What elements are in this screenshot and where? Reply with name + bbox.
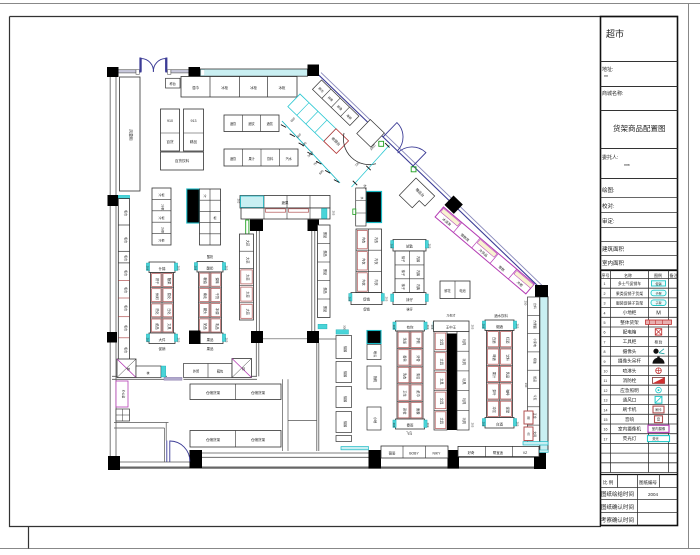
svg-text:袜裤: 袜裤 <box>343 421 348 428</box>
svg-text:1: 1 <box>604 282 606 286</box>
svg-text:鞋: 鞋 <box>242 366 245 371</box>
svg-text:202: 202 <box>237 199 241 204</box>
svg-text:饮料: 饮料 <box>533 303 538 309</box>
svg-text:春雨: 春雨 <box>407 423 414 428</box>
svg-text:袜仔: 袜仔 <box>406 297 413 302</box>
svg-text:毛巾: 毛巾 <box>124 237 129 243</box>
svg-text:校对:: 校对: <box>602 202 615 210</box>
svg-text:审定:: 审定: <box>602 217 615 225</box>
svg-text:袜裤: 袜裤 <box>343 396 348 403</box>
svg-text:冷柜: 冷柜 <box>161 204 166 210</box>
svg-text:建筑面积: 建筑面积 <box>602 245 625 253</box>
svg-text:大蒜: 大蒜 <box>246 274 251 281</box>
svg-text:206: 206 <box>482 324 486 329</box>
svg-text:休闲: 休闲 <box>155 293 160 299</box>
svg-text:203: 203 <box>177 266 181 271</box>
svg-text:袜裤: 袜裤 <box>343 346 348 353</box>
svg-text:文具: 文具 <box>167 323 172 330</box>
svg-text:2: 2 <box>604 292 606 296</box>
svg-text:蛋品: 蛋品 <box>323 269 328 275</box>
svg-text:袜子: 袜子 <box>401 270 406 277</box>
svg-text:内裤: 内裤 <box>416 284 421 291</box>
svg-text:冰柜: 冰柜 <box>250 85 257 90</box>
svg-text:203: 203 <box>385 297 389 302</box>
svg-text:室内摄像机: 室内摄像机 <box>618 426 641 433</box>
svg-text:203: 203 <box>426 423 430 428</box>
svg-text:206: 206 <box>430 325 434 330</box>
svg-text:13: 13 <box>604 399 608 403</box>
svg-text:水: 水 <box>360 197 364 200</box>
svg-text:日化: 日化 <box>167 308 172 315</box>
svg-text:8: 8 <box>604 350 606 354</box>
svg-text:精品: 精品 <box>190 139 198 144</box>
svg-text:文具: 文具 <box>440 398 445 405</box>
svg-text:护肤: 护肤 <box>416 338 421 345</box>
svg-text:应急照明: 应急照明 <box>620 387 639 394</box>
svg-text:红酒: 红酒 <box>506 337 511 344</box>
svg-text:文具: 文具 <box>533 431 538 437</box>
svg-text:10: 10 <box>604 370 608 374</box>
svg-text:地址:: 地址: <box>602 66 613 73</box>
svg-text:小地: 小地 <box>373 417 378 424</box>
svg-text:工具柜: 工具柜 <box>623 338 637 345</box>
svg-text:荧光灯: 荧光灯 <box>623 435 637 442</box>
svg-text:促销: 促销 <box>363 307 370 312</box>
svg-text:6: 6 <box>604 331 606 335</box>
svg-text:图纸确认时间: 图纸确认时间 <box>601 503 634 511</box>
svg-text:果类促销子货架: 果类促销子货架 <box>616 291 643 296</box>
svg-text:9: 9 <box>604 360 606 364</box>
svg-text:白酒: 白酒 <box>496 422 503 427</box>
svg-text:大蒜: 大蒜 <box>246 309 251 316</box>
svg-text:206: 206 <box>390 244 394 249</box>
svg-text:袜裤: 袜裤 <box>343 371 348 378</box>
svg-text:酸奶: 酸奶 <box>207 254 213 259</box>
svg-text:冲饮: 冲饮 <box>492 407 497 414</box>
svg-text:203: 203 <box>471 325 475 330</box>
svg-text:206: 206 <box>194 266 198 271</box>
svg-text:3: 3 <box>604 302 606 306</box>
svg-text:子架: 子架 <box>655 291 661 296</box>
svg-text:内衣: 内衣 <box>362 279 367 286</box>
svg-text:203: 203 <box>426 325 430 330</box>
svg-text:果品: 果品 <box>207 346 214 351</box>
svg-text:水产: 水产 <box>363 184 367 190</box>
svg-text:冰柜: 冰柜 <box>279 85 286 90</box>
svg-text:薇姿: 薇姿 <box>389 451 396 456</box>
svg-text:冷: 冷 <box>203 193 206 198</box>
svg-text:酒饮: 酒饮 <box>230 156 237 161</box>
svg-text:咖啡: 咖啡 <box>506 389 511 396</box>
svg-text:大蒜: 大蒜 <box>246 240 251 247</box>
svg-text:地瓜: 地瓜 <box>373 351 378 358</box>
svg-text:14: 14 <box>604 408 608 412</box>
svg-text:203: 203 <box>225 338 229 343</box>
svg-text:冷柜: 冷柜 <box>158 215 164 220</box>
svg-text:饮料: 饮料 <box>267 156 274 161</box>
svg-text:内衣: 内衣 <box>374 279 379 286</box>
svg-text:蛋品: 蛋品 <box>323 306 328 312</box>
svg-text:电池: 电池 <box>459 288 466 293</box>
svg-text:百货: 百货 <box>166 139 174 144</box>
svg-text:7: 7 <box>604 340 606 344</box>
svg-text:仓储货架: 仓储货架 <box>251 437 266 442</box>
svg-text:300: 300 <box>343 325 347 330</box>
svg-text:子架: 子架 <box>655 300 661 305</box>
svg-text:内裤: 内裤 <box>416 256 421 263</box>
svg-text:五金: 五金 <box>533 413 538 419</box>
svg-text:仓储货架: 仓储货架 <box>206 437 221 442</box>
svg-text:好奇: 好奇 <box>468 450 475 455</box>
svg-text:多士气促销车: 多士气促销车 <box>618 281 641 286</box>
svg-text:膨化: 膨化 <box>167 293 172 300</box>
svg-text:文具: 文具 <box>440 378 445 385</box>
svg-text:牙膏: 牙膏 <box>416 355 421 361</box>
svg-text:206: 206 <box>392 325 396 330</box>
svg-text:試監: 試監 <box>406 244 413 249</box>
svg-text:203: 203 <box>516 324 520 329</box>
svg-text:有你: 有你 <box>407 325 414 330</box>
svg-text:罐头: 罐头 <box>203 308 208 315</box>
svg-text:袜仔: 袜仔 <box>406 307 413 312</box>
svg-text:乳品: 乳品 <box>506 372 511 378</box>
svg-text:17: 17 <box>604 437 608 441</box>
svg-text:清洁: 清洁 <box>416 373 421 379</box>
svg-text:206: 206 <box>146 266 150 271</box>
svg-text:16: 16 <box>604 428 608 432</box>
svg-text:文具: 文具 <box>440 418 445 425</box>
svg-text:绘图:: 绘图: <box>602 186 615 194</box>
svg-text:今互: 今互 <box>533 395 538 401</box>
svg-text:203: 203 <box>471 423 475 428</box>
svg-text:南北: 南北 <box>203 293 208 300</box>
svg-text:比 例: 比 例 <box>603 479 614 486</box>
svg-text:毛巾: 毛巾 <box>124 270 129 276</box>
svg-text:160: 160 <box>524 383 528 388</box>
svg-text:服装促销子货架: 服装促销子货架 <box>616 300 643 305</box>
svg-text:方便面: 方便面 <box>533 320 538 329</box>
svg-text:烟酒: 烟酒 <box>496 324 503 329</box>
svg-text:奶品: 奶品 <box>203 323 208 329</box>
svg-text:饼干: 饼干 <box>155 278 160 285</box>
svg-text:外贸: 外贸 <box>193 369 199 374</box>
svg-text:柜: 柜 <box>213 215 216 220</box>
svg-text:什锦: 什锦 <box>159 266 166 271</box>
svg-text:商城名称:: 商城名称: <box>602 90 623 97</box>
svg-text:冲调: 冲调 <box>215 308 220 314</box>
svg-text:5: 5 <box>604 321 606 325</box>
svg-text:粮油: 粮油 <box>203 277 208 283</box>
svg-text:毛巾: 毛巾 <box>124 255 129 261</box>
svg-text:玩具: 玩具 <box>462 339 467 346</box>
svg-text:酸奶: 酸奶 <box>207 266 214 271</box>
svg-text:冰柜: 冰柜 <box>221 85 228 90</box>
svg-text:柜台: 柜台 <box>655 338 663 344</box>
svg-text:206: 206 <box>392 423 396 428</box>
svg-text:蛋品: 蛋品 <box>323 250 328 256</box>
svg-text:4: 4 <box>604 311 606 315</box>
svg-text:内衣: 内衣 <box>374 237 379 244</box>
svg-text:大蒜: 大蒜 <box>246 291 251 298</box>
svg-text:NIKY: NIKY <box>433 452 442 456</box>
svg-text:大蒜: 大蒜 <box>246 257 251 264</box>
svg-text:冷柜: 冷柜 <box>158 192 164 197</box>
svg-text:206: 206 <box>348 297 352 302</box>
svg-text:摄像头: 摄像头 <box>623 348 637 355</box>
svg-text:蛋品: 蛋品 <box>323 232 328 238</box>
svg-text:鲜花: 鲜花 <box>444 288 451 293</box>
svg-text:果汁: 果汁 <box>249 156 256 161</box>
svg-text:湿巾: 湿巾 <box>192 85 199 90</box>
svg-text:纸品: 纸品 <box>155 323 160 329</box>
svg-text:图例: 图例 <box>654 272 662 278</box>
svg-text:名称: 名称 <box>624 272 632 278</box>
svg-text:保健: 保健 <box>506 407 511 414</box>
svg-text:VZ: VZ <box>523 451 527 455</box>
svg-text:M: M <box>656 311 661 317</box>
svg-text:图纸绘给时间: 图纸绘给时间 <box>601 490 634 498</box>
svg-text:洗化: 洗化 <box>155 308 160 315</box>
svg-text:刷: 刷 <box>527 416 530 420</box>
svg-text:室内面积: 室内面积 <box>602 259 625 267</box>
svg-text:喷淋头: 喷淋头 <box>623 367 637 374</box>
svg-text:毛巾: 毛巾 <box>124 287 129 293</box>
svg-text:15: 15 <box>604 418 608 422</box>
svg-text:BOBY: BOBY <box>409 452 419 456</box>
svg-text:备注: 备注 <box>670 272 678 278</box>
svg-text:蔬果: 蔬果 <box>282 200 289 205</box>
svg-text:汽水: 汽水 <box>286 156 293 161</box>
svg-text:袜: 袜 <box>127 366 130 371</box>
svg-text:飞鸟: 飞鸟 <box>406 431 412 436</box>
svg-text:箱包: 箱包 <box>217 369 224 374</box>
svg-text:冷柜: 冷柜 <box>158 238 164 243</box>
svg-text:蛋品: 蛋品 <box>323 287 328 293</box>
svg-text:摄像头吊杆: 摄像头吊杆 <box>618 358 641 365</box>
svg-text:毛巾: 毛巾 <box>124 347 129 353</box>
svg-text:玩具: 玩具 <box>462 398 467 405</box>
svg-text:206: 206 <box>482 422 486 427</box>
svg-text:通风口: 通风口 <box>623 396 637 403</box>
svg-text:250: 250 <box>524 301 528 306</box>
svg-text:2004: 2004 <box>648 492 659 497</box>
svg-text:纸品: 纸品 <box>533 376 538 382</box>
svg-text:白酒: 白酒 <box>492 337 497 344</box>
svg-text:玩具: 玩具 <box>462 359 467 366</box>
svg-text:洗发: 洗发 <box>402 338 407 345</box>
svg-text:风幕柜: 风幕柜 <box>129 129 134 141</box>
svg-text:消防栓: 消防栓 <box>623 377 637 384</box>
svg-text:王中王: 王中王 <box>446 325 457 330</box>
svg-text:仓储货架: 仓储货架 <box>251 390 266 395</box>
svg-text:配电箱: 配电箱 <box>623 329 637 336</box>
svg-text:刷卡: 刷卡 <box>655 407 662 412</box>
svg-text:203: 203 <box>177 338 181 343</box>
svg-text:序号: 序号 <box>602 272 610 278</box>
svg-text:茶叶: 茶叶 <box>492 389 497 396</box>
svg-text:刷卡机: 刷卡机 <box>623 406 637 413</box>
svg-text:913: 913 <box>191 119 197 123</box>
svg-text:文具: 文具 <box>440 359 445 366</box>
svg-text:玩具: 玩具 <box>462 418 467 425</box>
svg-text:酒饮: 酒饮 <box>267 121 274 126</box>
svg-text:果品: 果品 <box>207 337 214 342</box>
svg-text:12: 12 <box>604 389 608 393</box>
svg-text:203: 203 <box>225 266 229 271</box>
svg-text:毛巾: 毛巾 <box>124 325 129 331</box>
svg-text:11: 11 <box>604 379 608 383</box>
svg-text:图纸编号: 图纸编号 <box>639 479 657 486</box>
svg-text:小地柜: 小地柜 <box>623 309 637 316</box>
svg-text:内衣: 内衣 <box>374 258 379 265</box>
svg-text:冷柜: 冷柜 <box>161 227 166 233</box>
svg-text:毛巾: 毛巾 <box>124 210 129 216</box>
svg-text:整体货架: 整体货架 <box>620 319 639 326</box>
svg-text:糖果: 糖果 <box>167 278 172 285</box>
svg-text:称台: 称台 <box>170 81 176 86</box>
svg-text:拖鞋: 拖鞋 <box>373 376 378 383</box>
svg-text:委托人:: 委托人: <box>602 154 618 161</box>
svg-text:饮料: 饮料 <box>506 354 511 361</box>
svg-text:酒水饮料: 酒水饮料 <box>494 313 508 318</box>
svg-text:内衣: 内衣 <box>362 258 367 265</box>
svg-text:203: 203 <box>332 211 336 216</box>
svg-text:毛巾: 毛巾 <box>124 305 129 311</box>
svg-text:室内摄像: 室内摄像 <box>652 426 666 431</box>
svg-text:206: 206 <box>146 338 150 343</box>
svg-text:酒饮: 酒饮 <box>230 121 237 126</box>
svg-text:酒饮: 酒饮 <box>248 121 255 126</box>
svg-text:袜子: 袜子 <box>401 256 406 263</box>
svg-text:促销: 促销 <box>655 281 661 286</box>
svg-text:荧光: 荧光 <box>652 436 659 441</box>
svg-text:果汁: 果汁 <box>492 372 497 379</box>
svg-text:办公桌: 办公桌 <box>122 390 126 399</box>
svg-text:香皂: 香皂 <box>402 355 407 361</box>
svg-text:面膜: 面膜 <box>416 408 421 415</box>
svg-text:干货: 干货 <box>215 293 220 299</box>
svg-text:***: *** <box>624 164 630 170</box>
svg-text:考察确认时间: 考察确认时间 <box>601 516 634 524</box>
svg-text:203: 203 <box>428 244 432 249</box>
svg-text:乃你才: 乃你才 <box>446 313 455 318</box>
svg-text:啤酒: 啤酒 <box>492 354 497 361</box>
svg-text:纸巾: 纸巾 <box>416 390 421 396</box>
svg-text:**: ** <box>604 75 608 81</box>
svg-text:百货饮料: 百货饮料 <box>175 158 190 163</box>
svg-text:袜: 袜 <box>146 370 149 375</box>
svg-text:内衣: 内衣 <box>362 237 367 244</box>
svg-text:促销: 促销 <box>159 346 166 351</box>
svg-text:彩妆: 彩妆 <box>402 408 407 415</box>
svg-text:粮油: 粮油 <box>533 358 538 364</box>
svg-text:大件: 大件 <box>159 337 166 342</box>
svg-text:玩具: 玩具 <box>462 378 467 385</box>
svg-text:货架商品配置图: 货架商品配置图 <box>613 123 666 133</box>
svg-text:帮宝适: 帮宝适 <box>493 450 504 455</box>
svg-text:促销: 促销 <box>363 297 370 302</box>
svg-text:超市: 超市 <box>606 28 624 39</box>
svg-text:小家电: 小家电 <box>533 338 538 347</box>
svg-text:仓储货架: 仓储货架 <box>206 390 221 395</box>
svg-text:洗衣: 洗衣 <box>402 373 407 380</box>
svg-text:卫生: 卫生 <box>402 390 407 397</box>
svg-text:音响: 音响 <box>625 416 635 423</box>
svg-text:袜子: 袜子 <box>401 284 406 291</box>
svg-text:调味: 调味 <box>215 277 220 284</box>
svg-text:乳品: 乳品 <box>215 323 220 329</box>
svg-text:文具: 文具 <box>440 339 445 346</box>
svg-text:音: 音 <box>527 432 530 436</box>
svg-text:203: 203 <box>516 422 520 427</box>
svg-text:内裤: 内裤 <box>416 270 421 277</box>
svg-text:910: 910 <box>167 119 173 123</box>
